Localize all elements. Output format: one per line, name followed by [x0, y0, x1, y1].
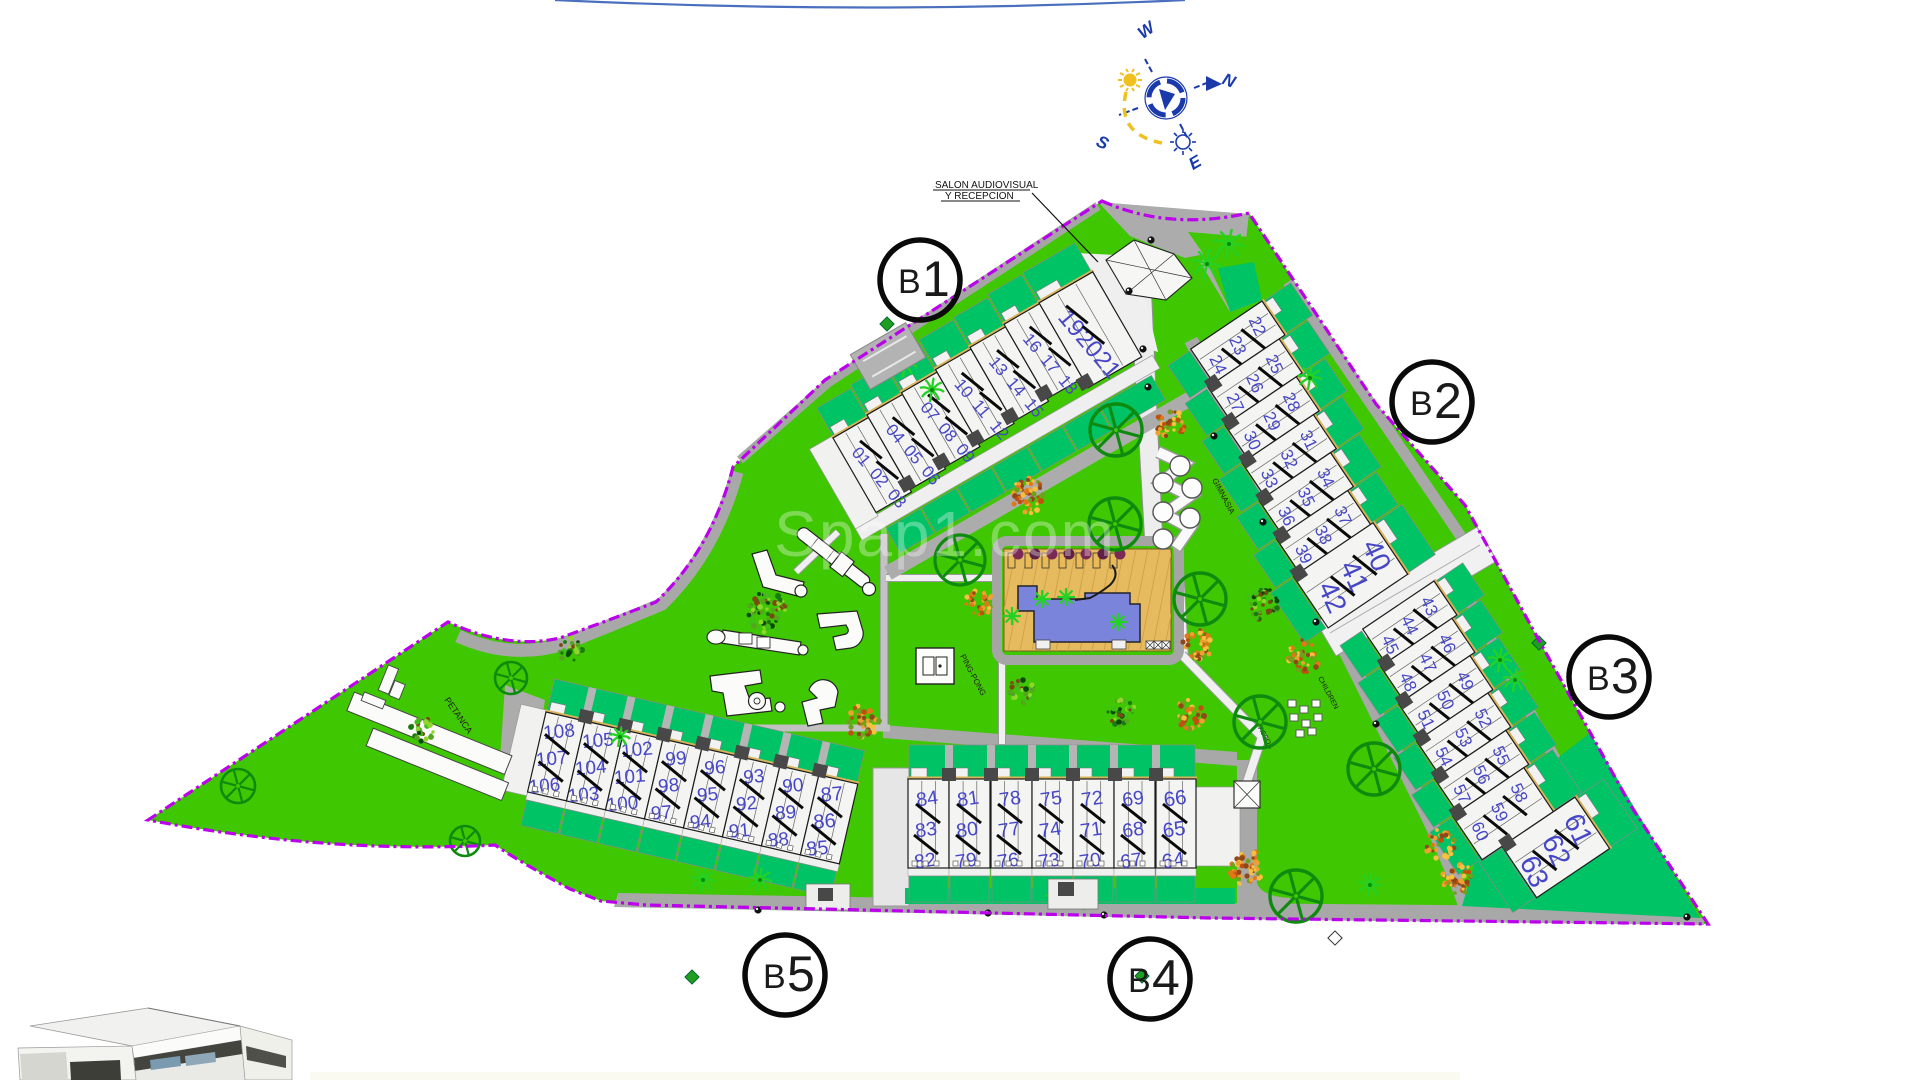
- svg-text:2: 2: [1434, 373, 1462, 429]
- svg-text:85: 85: [805, 837, 829, 861]
- svg-text:N: N: [1220, 69, 1239, 91]
- svg-text:108: 108: [542, 720, 575, 744]
- svg-text:3: 3: [1611, 648, 1639, 704]
- svg-text:88: 88: [767, 829, 790, 852]
- svg-text:B: B: [898, 263, 921, 301]
- svg-text:4: 4: [1152, 950, 1180, 1006]
- svg-text:91: 91: [728, 820, 751, 843]
- svg-text:B: B: [1587, 660, 1610, 698]
- svg-text:B: B: [763, 958, 786, 996]
- svg-text:5: 5: [787, 946, 815, 1002]
- svg-text:SALON AUDIOVISUAL: SALON AUDIOVISUAL: [935, 180, 1039, 191]
- svg-text:1: 1: [922, 251, 950, 307]
- svg-text:Spap1.com: Spap1.com: [774, 498, 1116, 570]
- svg-text:94: 94: [689, 811, 712, 834]
- svg-text:B: B: [1410, 385, 1433, 423]
- svg-text:97: 97: [650, 802, 673, 825]
- svg-text:B: B: [1128, 962, 1151, 1000]
- svg-text:105: 105: [581, 729, 614, 753]
- svg-text:E: E: [1185, 151, 1205, 173]
- svg-text:S: S: [1093, 132, 1112, 154]
- svg-text:W: W: [1134, 17, 1160, 43]
- svg-text:Y RECEPCION: Y RECEPCION: [945, 191, 1014, 202]
